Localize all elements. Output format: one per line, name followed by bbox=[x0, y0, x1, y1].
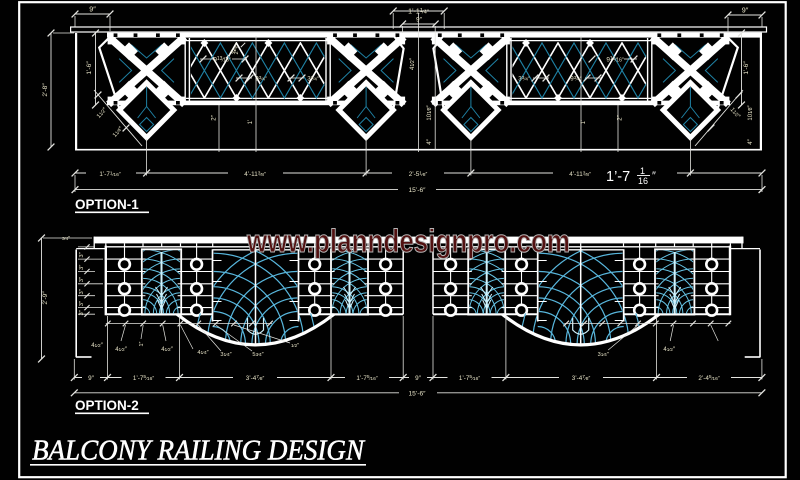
svg-text:2″: 2″ bbox=[212, 114, 218, 120]
svg-text:1⁄2″: 1⁄2″ bbox=[291, 343, 299, 349]
svg-text:33⁄4″: 33⁄4″ bbox=[307, 75, 319, 83]
svg-text:93⁄4″: 93⁄4″ bbox=[255, 75, 267, 83]
svg-text:3″: 3″ bbox=[79, 252, 85, 257]
svg-text:www.planndesignpro.com: www.planndesignpro.com bbox=[246, 223, 570, 259]
svg-text:1’: 1’ bbox=[581, 120, 587, 125]
svg-text:1’: 1’ bbox=[248, 120, 254, 125]
svg-text:41⁄2″: 41⁄2″ bbox=[663, 347, 675, 353]
svg-text:41⁄2″: 41⁄2″ bbox=[161, 347, 173, 353]
svg-text:31⁄4″: 31⁄4″ bbox=[220, 352, 231, 358]
svg-text:3″: 3″ bbox=[79, 301, 85, 306]
svg-text:1’-7: 1’-7 bbox=[606, 169, 630, 185]
svg-text:1: 1 bbox=[640, 166, 645, 176]
svg-text:″: ″ bbox=[652, 170, 656, 182]
svg-text:2’-9″: 2’-9″ bbox=[42, 291, 49, 305]
svg-text:3″: 3″ bbox=[79, 277, 85, 282]
svg-text:9″: 9″ bbox=[742, 6, 749, 15]
svg-text:9″: 9″ bbox=[89, 5, 96, 14]
svg-text:33⁄4″: 33⁄4″ bbox=[518, 75, 530, 83]
svg-text:101⁄8″: 101⁄8″ bbox=[427, 105, 433, 121]
svg-text:41⁄2″: 41⁄2″ bbox=[410, 57, 416, 70]
svg-text:53⁄4″: 53⁄4″ bbox=[252, 352, 263, 358]
svg-text:9″: 9″ bbox=[88, 375, 95, 382]
svg-text:101⁄8″: 101⁄8″ bbox=[748, 105, 754, 121]
svg-text:41⁄2″: 41⁄2″ bbox=[115, 347, 127, 353]
svg-text:41⁄4″: 41⁄4″ bbox=[197, 350, 208, 356]
svg-text:BALCONY RAILING DESIGN: BALCONY RAILING DESIGN bbox=[32, 435, 366, 467]
svg-text:1’-6″: 1’-6″ bbox=[86, 61, 93, 75]
svg-text:31⁄4″: 31⁄4″ bbox=[598, 352, 609, 358]
svg-text:4″: 4″ bbox=[748, 138, 754, 144]
svg-text:3⁄4″: 3⁄4″ bbox=[62, 236, 70, 242]
svg-text:2″: 2″ bbox=[618, 114, 624, 120]
svg-text:OPTION-1: OPTION-1 bbox=[75, 197, 139, 212]
svg-text:15’-6″: 15’-6″ bbox=[409, 187, 427, 194]
svg-text:2’-51⁄8″: 2’-51⁄8″ bbox=[409, 170, 428, 178]
svg-text:2’-8″: 2’-8″ bbox=[42, 83, 49, 97]
svg-text:3’-47⁄8″: 3’-47⁄8″ bbox=[246, 374, 265, 382]
svg-text:93⁄4″: 93⁄4″ bbox=[570, 75, 582, 83]
svg-text:3″: 3″ bbox=[79, 310, 85, 315]
svg-text:4″: 4″ bbox=[427, 138, 433, 144]
svg-text:1″: 1″ bbox=[139, 341, 145, 346]
svg-text:3″: 3″ bbox=[79, 265, 85, 270]
svg-text:3″: 3″ bbox=[79, 289, 85, 294]
svg-text:1’-6″: 1’-6″ bbox=[743, 61, 750, 75]
svg-text:913⁄16″: 913⁄16″ bbox=[606, 56, 624, 64]
svg-text:16: 16 bbox=[638, 176, 648, 186]
svg-text:15’-6″: 15’-6″ bbox=[409, 390, 427, 397]
svg-text:9″: 9″ bbox=[415, 375, 422, 382]
svg-text:3’-47⁄8″: 3’-47⁄8″ bbox=[572, 374, 591, 382]
svg-text:9″: 9″ bbox=[416, 17, 422, 24]
svg-text:OPTION-2: OPTION-2 bbox=[75, 398, 139, 413]
svg-text:913⁄16″: 913⁄16″ bbox=[213, 56, 231, 64]
svg-text:41⁄2″: 41⁄2″ bbox=[91, 343, 103, 349]
